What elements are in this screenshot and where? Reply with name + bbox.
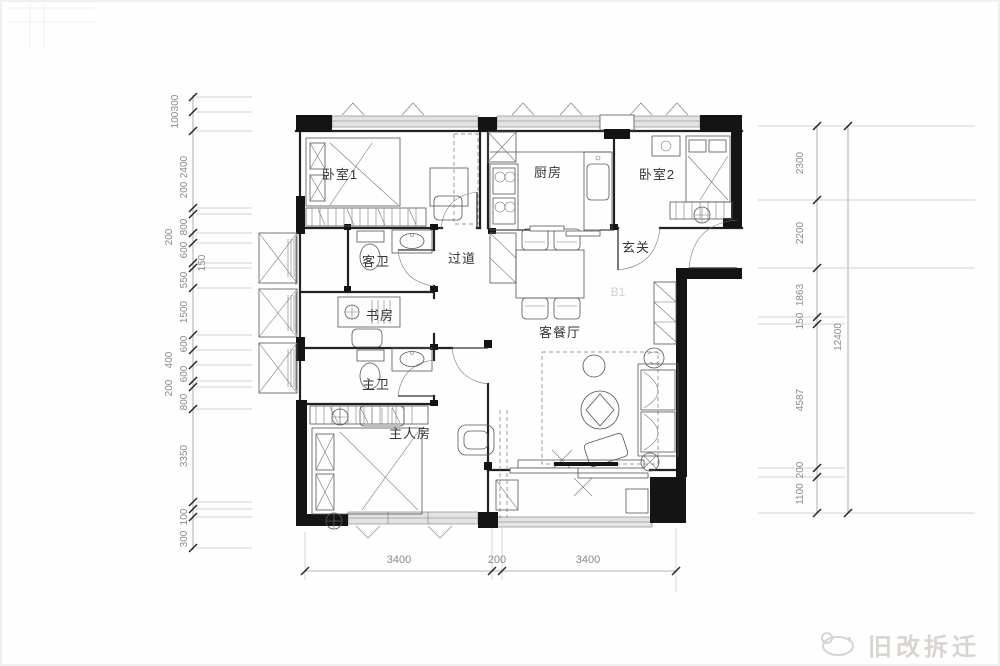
window-chevrons-icon [342, 103, 688, 115]
label-living-dining: 客餐厅 [539, 325, 581, 340]
bay-window-chevrons-icon [356, 526, 452, 538]
dim-label: 3400 [387, 554, 411, 566]
dim-label: 200 [488, 554, 506, 566]
label-guest-bath: 客卫 [362, 254, 390, 269]
label-study: 书房 [366, 308, 394, 323]
dim-label: 2400 [179, 155, 190, 178]
watermark-logo-icon [822, 633, 853, 655]
dim-label: 2300 [795, 151, 806, 174]
dim-label: 200 [179, 181, 190, 198]
dim-label-total: 12400 [833, 323, 844, 351]
furniture-dining [516, 229, 584, 319]
dim-label: 300 [170, 94, 181, 111]
dim-label: 1500 [179, 300, 190, 323]
label-bedroom2: 卧室2 [639, 167, 675, 182]
label-master-bedroom: 主人房 [389, 426, 431, 441]
furniture-master-bedroom [310, 406, 507, 529]
dim-label: 1863 [795, 283, 806, 306]
dim-label: 1100 [795, 483, 806, 505]
watermark: 旧改拆迁 [822, 633, 980, 661]
dim-label: 600 [179, 335, 190, 352]
floor-plan-image: 卧室1 厨房 卧室2 客卫 过道 玄关 书房 客餐厅 主卫 主人房 B1 300… [0, 0, 1000, 666]
dim-label: 4587 [795, 388, 806, 411]
ac-units [259, 233, 297, 393]
furniture-balcony [496, 480, 648, 513]
dim-label: 3350 [179, 444, 190, 467]
dim-label: 2200 [795, 221, 806, 244]
dim-label: 300 [179, 530, 190, 547]
label-floor-tag: B1 [611, 285, 626, 299]
dim-label: 3400 [576, 554, 600, 566]
bedroom1-door-icon [441, 192, 477, 228]
furniture-living [458, 226, 678, 496]
label-bedroom1: 卧室1 [322, 167, 358, 182]
furniture-foyer [654, 282, 676, 344]
watermark-text: 旧改拆迁 [868, 634, 980, 661]
label-foyer: 玄关 [622, 240, 650, 255]
dim-label: 800 [179, 393, 190, 410]
dim-label: 800 [179, 218, 190, 235]
dim-label: 100 [179, 508, 190, 525]
dim-label: 550 [179, 271, 190, 288]
dimension-chain-left: 300 100 2400 200 800 200 600 150 550 150… [164, 93, 252, 552]
dim-label: 600 [179, 365, 190, 382]
dimension-chain-right: 2300 2200 1863 150 4587 200 1100 12400 [758, 122, 975, 517]
dimension-chain-bottom: 3400 200 3400 [301, 528, 680, 592]
guest-bath-door-icon [398, 250, 434, 286]
dim-label: 400 [164, 351, 175, 368]
master-suite-door-icon [452, 348, 488, 384]
label-hallway: 过道 [448, 251, 476, 266]
dim-label: 200 [164, 228, 175, 245]
dim-label: 600 [179, 241, 190, 258]
floor-plan-svg: 卧室1 厨房 卧室2 客卫 过道 玄关 书房 客餐厅 主卫 主人房 B1 300… [0, 0, 1000, 666]
label-kitchen: 厨房 [534, 165, 562, 180]
dim-label: 200 [795, 461, 806, 478]
dim-label: 100 [170, 111, 181, 128]
master-bath-door-icon [398, 360, 434, 396]
dim-label: 200 [164, 379, 175, 396]
label-master-bath: 主卫 [362, 377, 390, 392]
dim-label: 150 [795, 312, 806, 329]
dim-label: 150 [197, 254, 208, 271]
